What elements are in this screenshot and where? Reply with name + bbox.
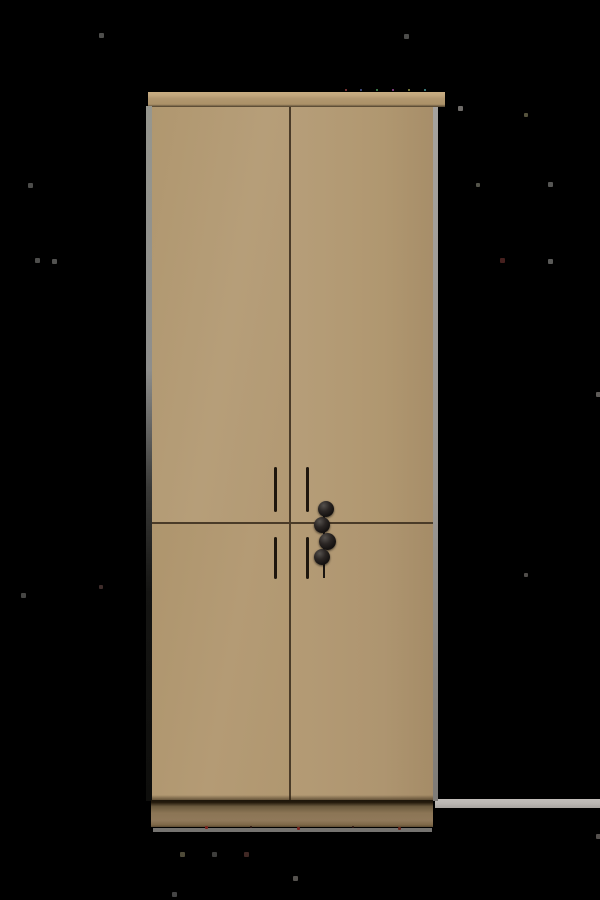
noise-speck [28,183,33,188]
noise-speck [180,852,185,857]
noise-speck [376,89,378,91]
noise-speck [35,258,40,263]
noise-speck [293,876,298,881]
wardrobe-right-edge [433,107,438,801]
door-handle [274,467,277,512]
plinth-shadow-line [153,828,432,832]
wardrobe-doors [152,107,433,800]
door-lower-left [152,524,289,800]
floor-line [435,799,600,808]
door-upper-left [152,107,289,522]
door-handle [306,467,309,512]
door-lower-right [291,524,433,800]
ball-knob [318,501,334,517]
noise-speck [52,259,57,264]
noise-speck [244,852,249,857]
door-upper-right [291,107,433,522]
ball-knob [314,549,330,565]
noise-speck [548,182,553,187]
ball-knob [319,533,336,550]
noise-speck [524,573,528,577]
noise-speck [352,826,354,828]
noise-speck [99,33,104,38]
ball-knob [314,517,330,533]
noise-speck [524,113,528,117]
wardrobe-plinth [151,800,433,827]
noise-speck [392,89,394,91]
noise-speck [250,826,252,828]
product-photo-stage [0,0,600,900]
noise-speck [360,89,362,91]
noise-speck [500,258,505,263]
noise-speck [345,89,347,91]
noise-speck [297,827,300,830]
noise-speck [408,89,410,91]
noise-speck [404,34,409,39]
noise-speck [424,89,426,91]
noise-speck [398,827,401,830]
noise-speck [476,183,480,187]
noise-speck [205,826,208,829]
noise-speck [172,892,177,897]
noise-speck [99,585,103,589]
door-handle [306,537,309,579]
door-handle [274,537,277,579]
noise-speck [458,106,463,111]
noise-speck [596,392,600,397]
noise-speck [596,834,600,839]
noise-speck [21,593,26,598]
wardrobe-top-cornice [148,92,445,107]
noise-speck [548,259,553,264]
noise-speck [212,852,217,857]
